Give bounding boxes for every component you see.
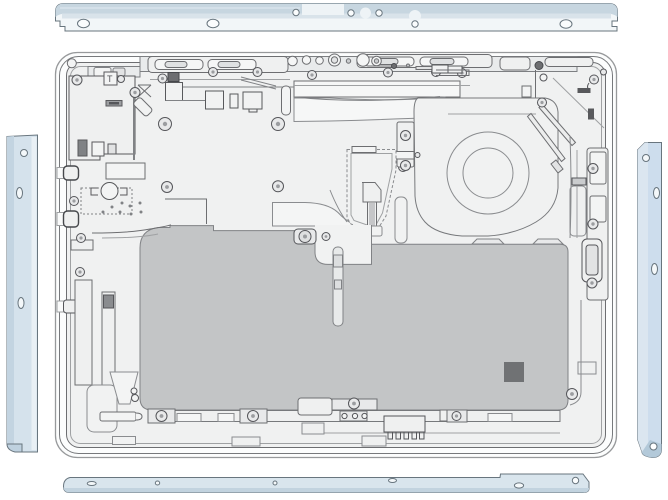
svg-text:T: T [107,74,113,84]
